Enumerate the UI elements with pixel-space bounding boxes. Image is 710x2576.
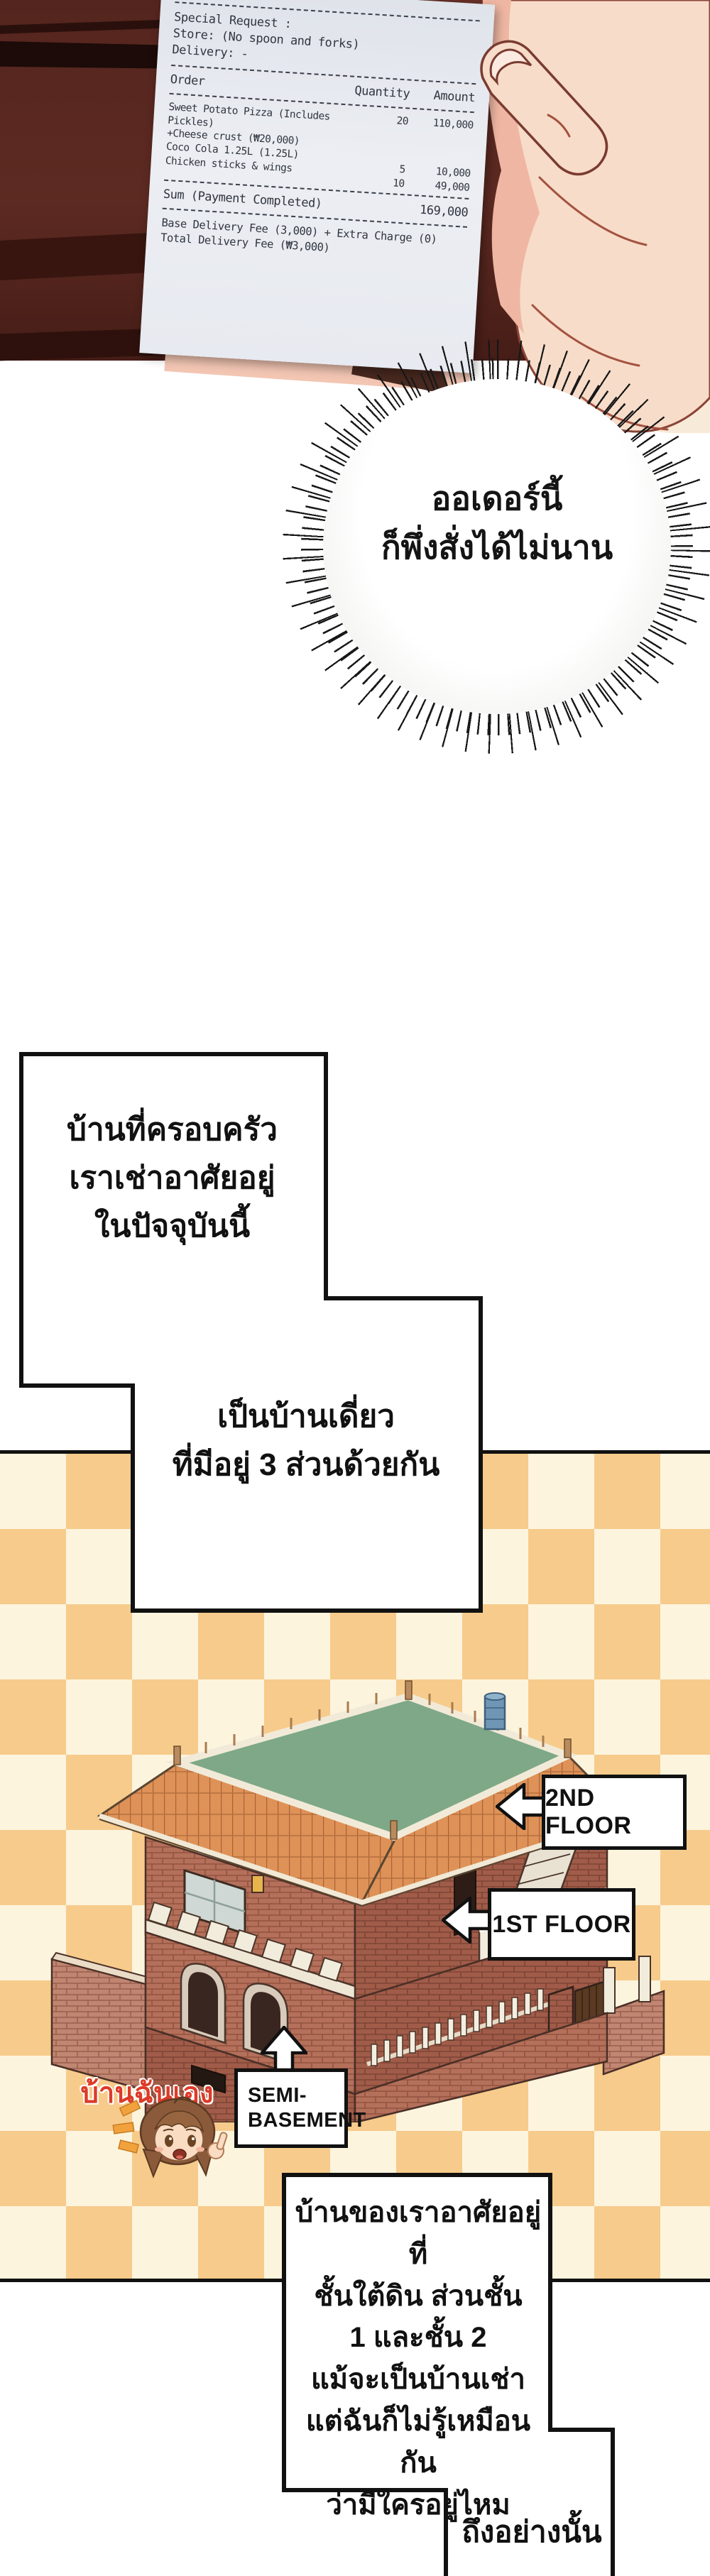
caption3-line1: บ้านของเราอาศัยอยู่ที่ [290, 2192, 547, 2276]
receipt-col-quantity: Quantity [349, 83, 410, 101]
caption-box-2: เป็นบ้านเดี่ยว ที่มีอยู่ 3 ส่วนด้วยกัน [142, 1393, 470, 1489]
thumb-illustration [463, 9, 633, 200]
comic-page: Special Request : Store: (No spoon and f… [0, 0, 710, 2576]
label-1st-floor: 1ST FLOOR [488, 1888, 635, 1961]
item-qty: 5 [372, 161, 405, 177]
bubble-line2: ก็พึ่งสั่งได้ไม่นาน [334, 523, 660, 572]
label-basement-text: BASEMENT [248, 2108, 366, 2133]
caption-box-4: ถึงอย่างนั้น [452, 2511, 612, 2553]
receipt-table-header: Order Quantity Amount [170, 72, 475, 105]
sum-value: 169,000 [403, 202, 469, 221]
caption3-line5: แต่ฉันก็ไม่รู้เหมือนกัน [290, 2401, 547, 2484]
left-arrow-icon [442, 1897, 494, 1944]
caption3-line2: ชั้นใต้ดิน ส่วนชั้น [290, 2276, 547, 2318]
chibi-character [106, 2093, 248, 2179]
label-semi-basement: SEMI- BASEMENT [234, 2068, 348, 2148]
caption2-line1: เป็นบ้านเดี่ยว [142, 1393, 470, 1441]
left-arrow-icon [496, 1783, 548, 1830]
caption4-line1: ถึงอย่างนั้น [452, 2511, 612, 2553]
house-illustration [39, 1626, 671, 2122]
item-qty: 10 [371, 176, 405, 192]
panel-dark-scene: Special Request : Store: (No spoon and f… [0, 0, 710, 497]
speech-bubble-text: ออเดอร์นี้ ก็พึ่งสั่งได้ไม่นาน [334, 474, 660, 572]
caption1-line3: ในปัจจุบันนี้ [28, 1202, 316, 1251]
up-arrow-icon [261, 2026, 307, 2071]
caption3-line3: 1 และชั้น 2 [290, 2317, 547, 2359]
caption2-line2: ที่มีอยู่ 3 ส่วนด้วยกัน [142, 1441, 470, 1489]
label-semi-text: SEMI- [248, 2083, 307, 2108]
caption-box-3: บ้านของเราอาศัยอยู่ที่ ชั้นใต้ดิน ส่วนชั… [290, 2192, 547, 2526]
caption3-line4: แม้จะเป็นบ้านเช่า [290, 2359, 547, 2401]
item-qty: 20 [374, 114, 408, 142]
receipt-col-order: Order [170, 72, 349, 97]
caption-box-1: บ้านที่ครอบครัว เราเช่าอาศัยอยู่ ในปัจจุ… [28, 1106, 316, 1251]
item-amount: 49,000 [404, 178, 470, 195]
delivery-receipt: Special Request : Store: (No spoon and f… [139, 0, 495, 373]
caption1-line2: เราเช่าอาศัยอยู่ [28, 1154, 316, 1202]
label-1st-floor-text: 1ST FLOOR [492, 1911, 630, 1939]
caption1-line1: บ้านที่ครอบครัว [28, 1106, 316, 1154]
bubble-line1: ออเดอร์นี้ [334, 474, 660, 523]
label-2nd-floor: 2ND FLOOR [542, 1775, 687, 1850]
label-2nd-floor-text: 2ND FLOOR [545, 1785, 683, 1840]
